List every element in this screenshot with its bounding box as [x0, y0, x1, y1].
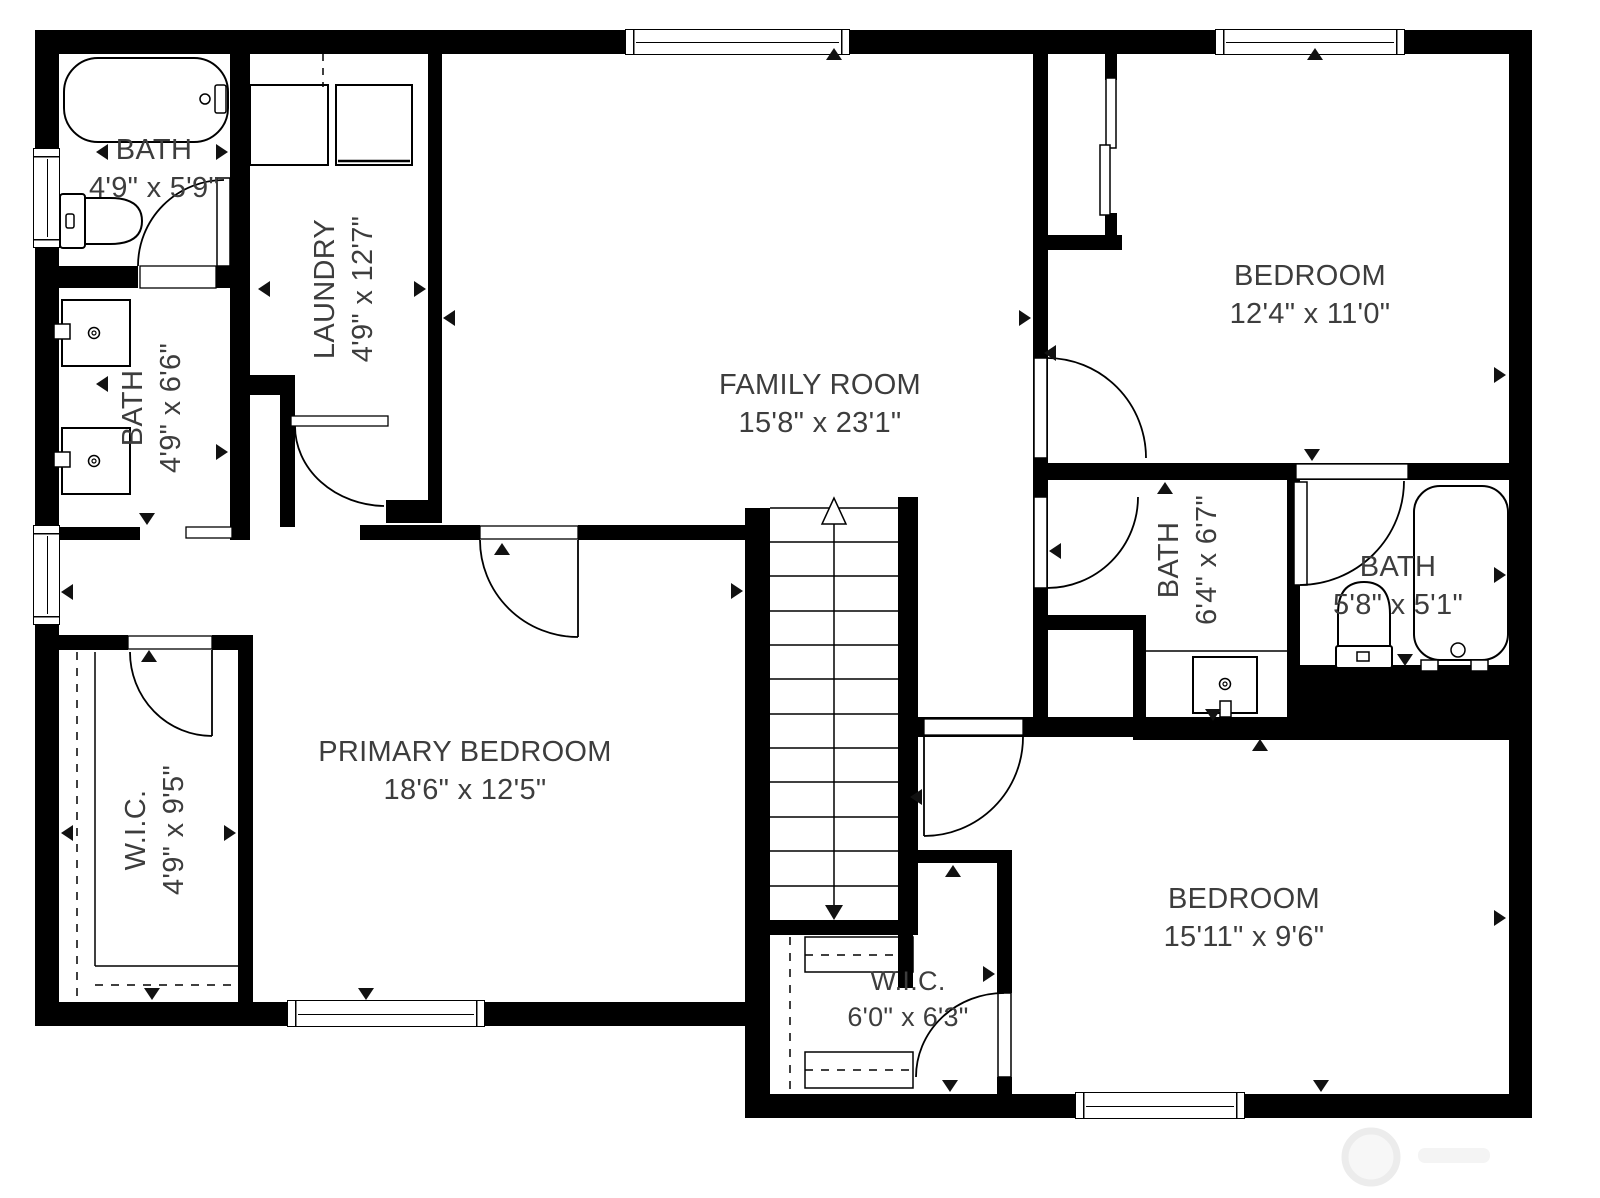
room-dims: 5'8" x 5'1": [1333, 586, 1463, 624]
room-label-primary-bedroom: PRIMARY BEDROOM 18'6" x 12'5": [318, 733, 611, 809]
stairs-down-arrow-icon: [825, 905, 843, 920]
room-label-bath-left: BATH 4'9" x 6'6": [114, 343, 190, 473]
room-name: W.I.C.: [847, 963, 968, 999]
room-label-bath-hall: BATH 6'4" x 6'7": [1150, 495, 1226, 625]
room-dims: 4'9" x 9'5": [155, 765, 193, 895]
staircase: [770, 498, 898, 920]
door-arc-bedroom1: [1047, 358, 1146, 458]
door-leaf-bath-ensuite: [1294, 482, 1307, 585]
tub-knob-icon: [200, 94, 210, 104]
door-arc-bedroom2: [924, 737, 1023, 836]
washer-icon: [250, 85, 328, 165]
floor-plan: BATH 4'9" x 5'9" LAUNDRY 4'9" x 12'7" FA…: [0, 0, 1600, 1198]
sink-faucet-icon: [1220, 701, 1231, 717]
doorway-primary: [480, 526, 578, 539]
sink-drain-icon: [92, 459, 96, 463]
door-leaf-hall-bath: [1034, 497, 1047, 588]
room-label-bath-top-left: BATH 4'9" x 5'9": [89, 131, 219, 207]
room-name: BEDROOM: [1164, 880, 1325, 918]
door-arc-wic1: [130, 652, 212, 736]
room-label-family-room: FAMILY ROOM 15'8" x 23'1": [719, 366, 921, 442]
door-arc-hall-bath: [1047, 497, 1138, 588]
door-leaf-laundry: [291, 416, 388, 426]
sink-drain-icon: [1223, 682, 1227, 686]
room-name: BATH: [1333, 548, 1463, 586]
door-leaf-bedroom1: [1034, 358, 1047, 458]
room-label-wic-bottom: W.I.C. 6'0" x 6'3": [847, 963, 968, 1035]
tub-handle-icon: [1471, 660, 1488, 671]
doorway-wic1: [128, 636, 212, 649]
room-label-wic-left: W.I.C. 4'9" x 9'5": [117, 765, 193, 895]
pocket-door-bath2: [186, 527, 232, 538]
room-dims: 12'4" x 11'0": [1230, 295, 1391, 333]
sink-faucet-icon: [54, 452, 70, 467]
room-dims: 15'8" x 23'1": [719, 404, 921, 442]
room-dims: 18'6" x 12'5": [318, 771, 611, 809]
room-dims: 4'9" x 5'9": [89, 169, 219, 207]
room-name: BATH: [1150, 495, 1188, 625]
doorway-bath1: [140, 266, 216, 288]
room-name: LAUNDRY: [306, 216, 344, 363]
room-label-bedroom-top-right: BEDROOM 12'4" x 11'0": [1230, 257, 1391, 333]
room-dims: 6'4" x 6'7": [1188, 495, 1226, 625]
sink-faucet-icon: [54, 324, 70, 339]
stairs-up-arrow-icon: [822, 498, 846, 524]
room-name: W.I.C.: [117, 765, 155, 895]
tub-faucet-icon: [215, 85, 226, 113]
room-name: FAMILY ROOM: [719, 366, 921, 404]
room-dims: 4'9" x 6'6": [152, 343, 190, 473]
watermark-logo: [1345, 1131, 1490, 1183]
sliding-closet-door-icon: [1100, 145, 1110, 215]
room-dims: 4'9" x 12'7": [344, 216, 382, 363]
sliding-closet-door-icon: [1106, 78, 1116, 148]
toilet-button-icon: [66, 214, 74, 228]
room-label-laundry: LAUNDRY 4'9" x 12'7": [306, 216, 382, 363]
room-dims: 15'11" x 9'6": [1164, 918, 1325, 956]
sink-drain-icon: [92, 331, 96, 335]
room-dims: 6'0" x 6'3": [847, 999, 968, 1035]
tub-faucet-icon: [1451, 643, 1465, 657]
room-name: BEDROOM: [1230, 257, 1391, 295]
room-name: BATH: [114, 343, 152, 473]
room-label-bath-ensuite: BATH 5'8" x 5'1": [1333, 548, 1463, 624]
dryer-icon: [336, 85, 412, 165]
doorway-hall: [924, 719, 1023, 735]
doorway-bath-ensuite: [1296, 464, 1408, 479]
room-name: PRIMARY BEDROOM: [318, 733, 611, 771]
room-name: BATH: [89, 131, 219, 169]
door-arc-laundry: [295, 426, 384, 506]
toilet-button-icon: [1357, 652, 1369, 661]
tub-handle-icon: [1421, 660, 1438, 671]
room-label-bedroom-bottom-right: BEDROOM 15'11" x 9'6": [1164, 880, 1325, 956]
door-leaf-wic2: [998, 993, 1011, 1077]
